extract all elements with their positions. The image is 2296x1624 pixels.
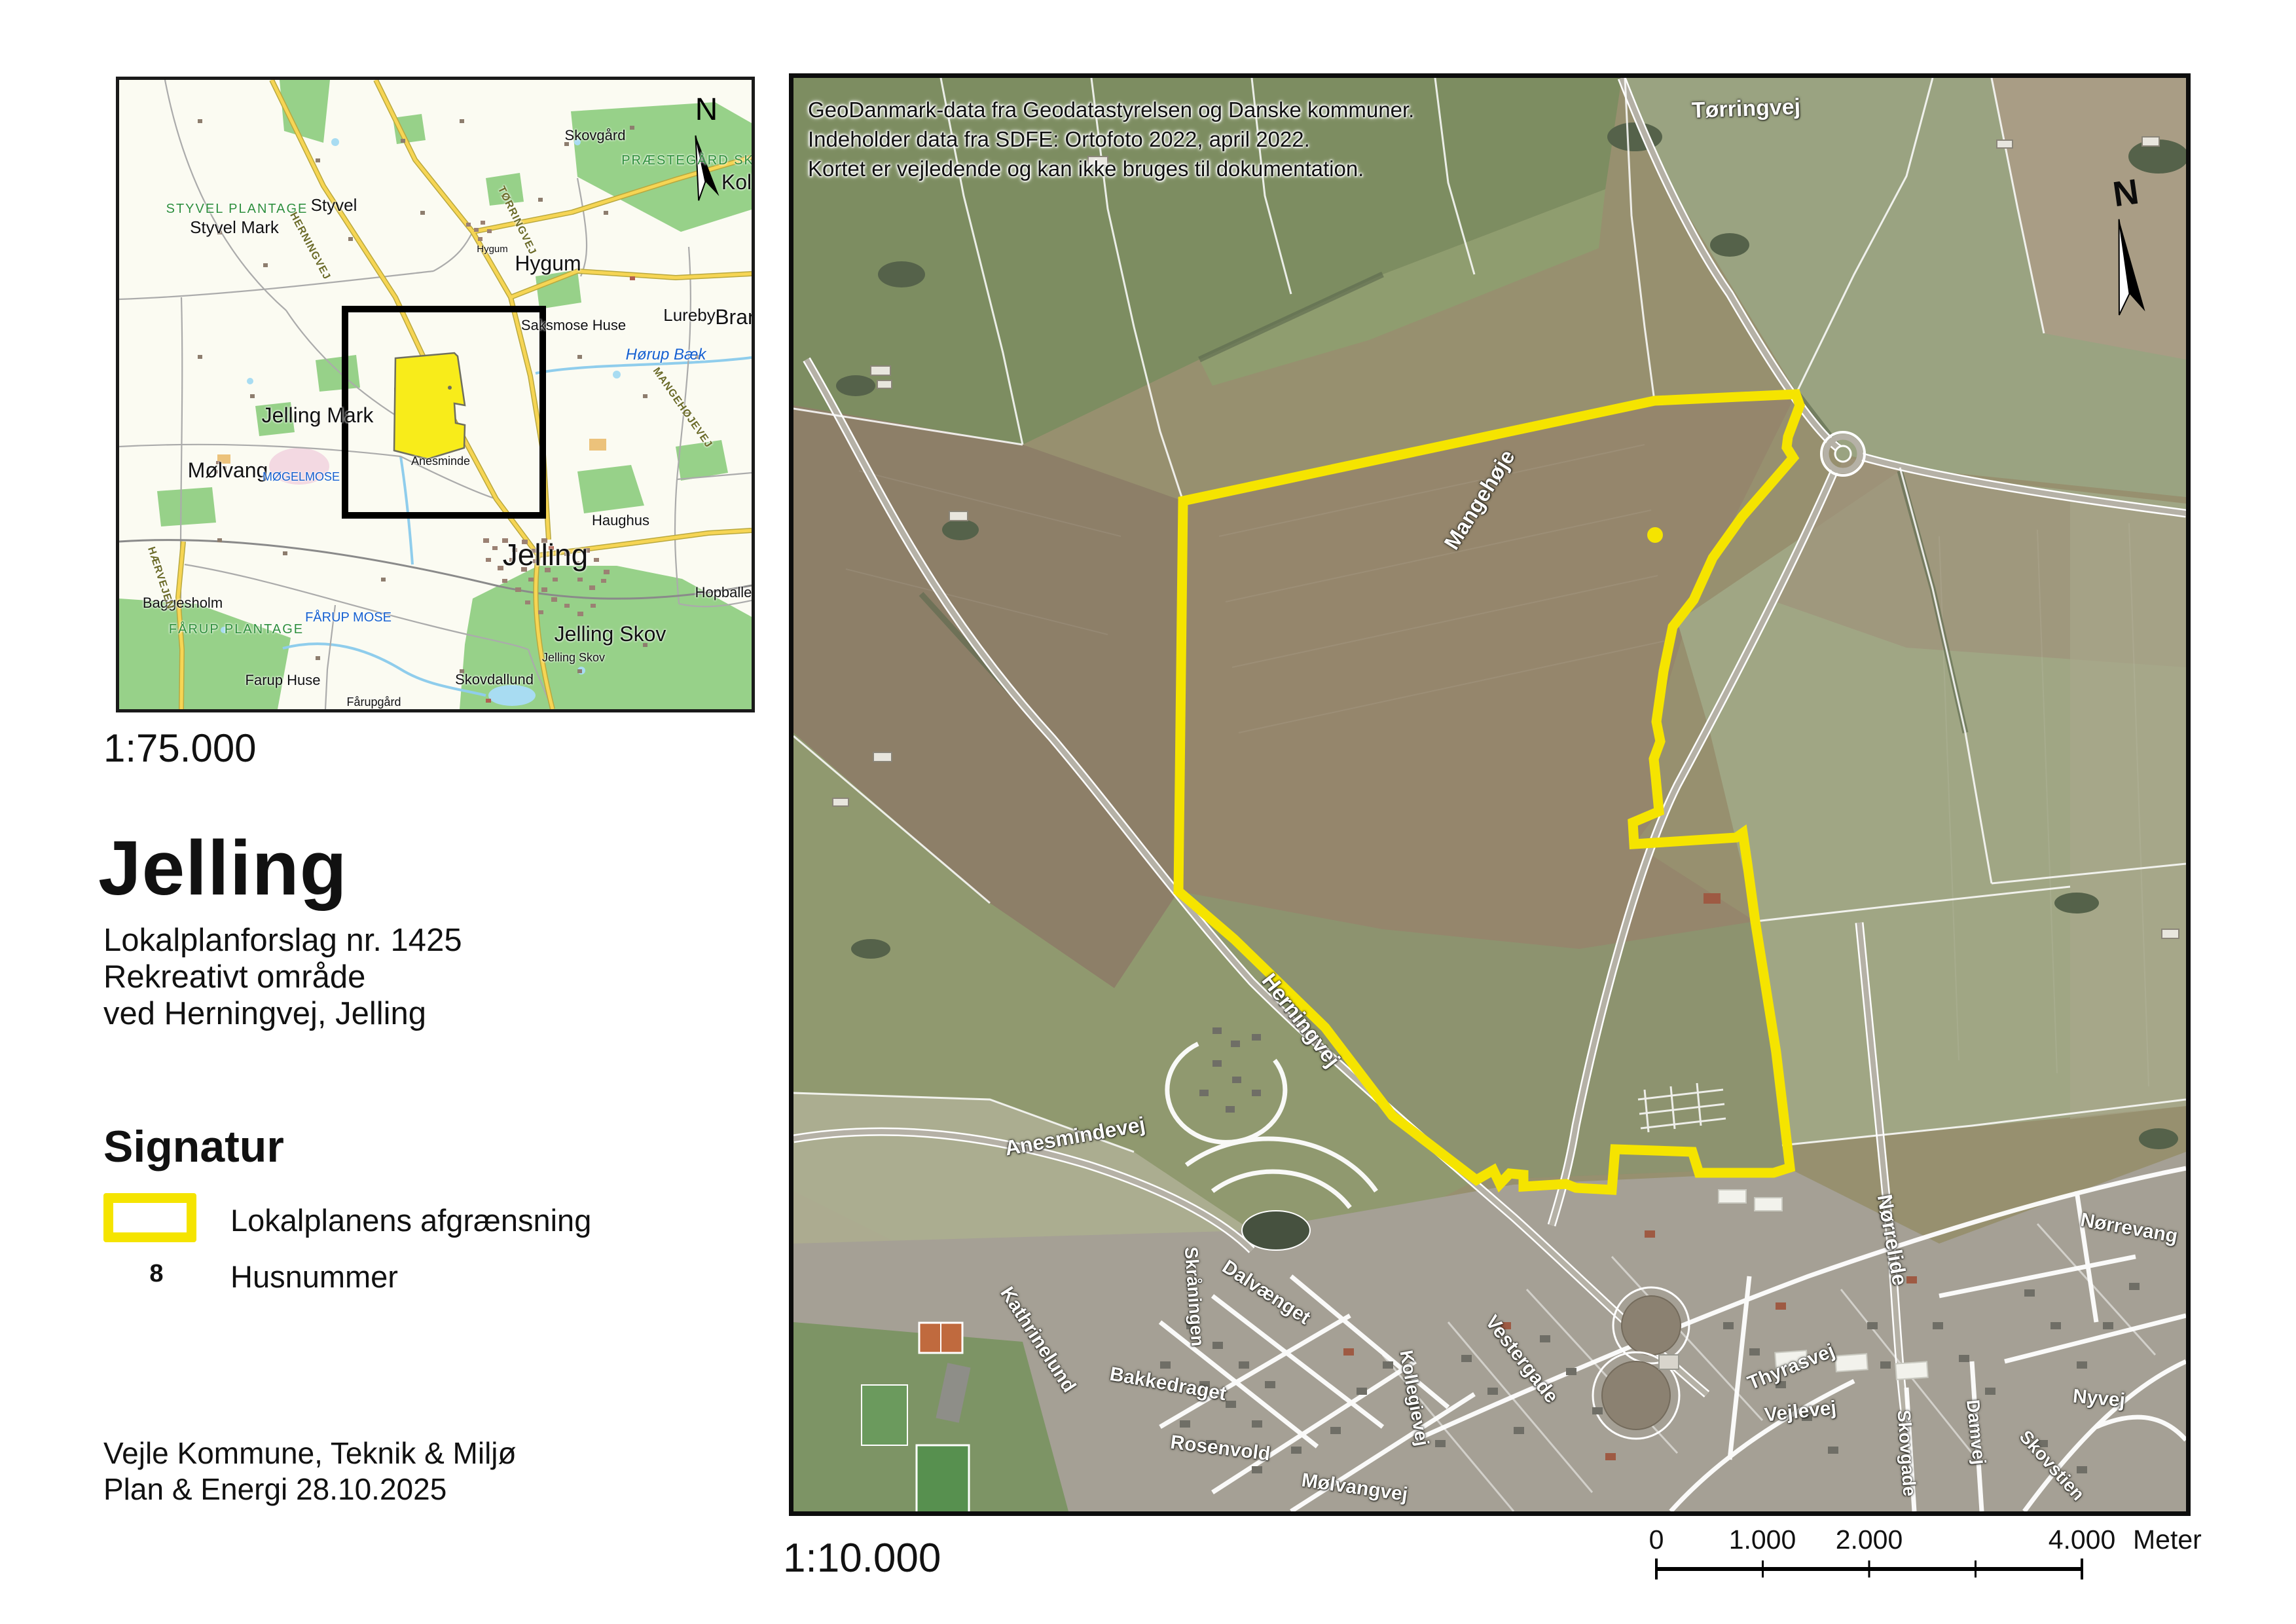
- minimap-label-kol: Kol: [707, 170, 755, 194]
- footer-line-2: Plan & Energi 28.10.2025: [103, 1471, 517, 1507]
- minimap-label-jelling-skov: Jelling Skov: [545, 622, 676, 646]
- minimap-north-label: N: [677, 92, 736, 128]
- minimap-label-skovdallund: Skovdallund: [448, 671, 540, 688]
- minimap-label-faarupgaard: Fårupgård: [335, 695, 413, 709]
- minimap-label-skovgaard: Skovgård: [543, 127, 647, 144]
- scalebar-label-0: 0: [1640, 1524, 1673, 1555]
- legend-boundary-swatch: [103, 1193, 196, 1242]
- minimap-label-anesminde: Anesminde: [401, 454, 480, 468]
- scalebar-label-4000: 4.000: [2036, 1524, 2128, 1555]
- minimap-label-jelling-town: Jelling: [480, 537, 611, 572]
- minimap-label-moegelmose: MØGELMOSE: [255, 470, 347, 484]
- minimap-label-saksmose: Saksmose Huse: [508, 317, 639, 334]
- husnummer-dot: [1647, 527, 1663, 543]
- plan-subtitle: Lokalplanforslag nr. 1425 Rekreativt omr…: [103, 922, 462, 1032]
- minimap-label-praestegaard-skov: PRÆSTEGÅRD SKOV: [600, 153, 755, 168]
- scalebar-unit: Meter: [2133, 1524, 2225, 1555]
- legend-boundary-label: Lokalplanens afgrænsning: [230, 1202, 591, 1238]
- subtitle-line-2: Rekreativt område: [103, 959, 462, 995]
- minimap-label-faarup-plantage: FÅRUP PLANTAGE: [164, 622, 308, 637]
- legend-husnummer-symbol: 8: [140, 1260, 173, 1288]
- attribution-line-3: Kortet er vejledende og kan ikke bruges …: [808, 154, 1414, 183]
- scalebar-label-2000: 2.000: [1823, 1524, 1915, 1555]
- scalebar: [1640, 1557, 2098, 1586]
- minimap-label-hygum-small: Hygum: [473, 244, 512, 255]
- overview-scale-text: 1:75.000: [103, 726, 257, 771]
- scalebar-label-1000: 1.000: [1717, 1524, 1808, 1555]
- ortho-map: GeoDanmark-data fra Geodatastyrelsen og …: [789, 73, 2191, 1516]
- pond: [1242, 1211, 1310, 1250]
- ortho-label-toerringvej: Tørringvej: [1670, 94, 1821, 124]
- legend-heading: Signatur: [103, 1121, 284, 1172]
- page-title: Jelling: [98, 824, 348, 913]
- footer-line-1: Vejle Kommune, Teknik & Miljø: [103, 1435, 517, 1471]
- minimap-label-hoerup-baek: Hørup Bæk: [613, 346, 718, 364]
- attribution-line-2: Indeholder data fra SDFE: Ortofoto 2022,…: [808, 124, 1414, 154]
- minimap-label-faarup-mose: FÅRUP MOSE: [296, 610, 401, 625]
- subtitle-line-1: Lokalplanforslag nr. 1425: [103, 922, 462, 959]
- minimap-label-haughus: Haughus: [581, 512, 660, 529]
- overview-map: Skovgård PRÆSTEGÅRD SKOV Kol Styvel Styv…: [116, 77, 755, 712]
- subtitle-line-3: ved Herningvej, Jelling: [103, 995, 462, 1032]
- ortho-scale-text: 1:10.000: [783, 1535, 941, 1581]
- footer-credit: Vejle Kommune, Teknik & Miljø Plan & Ene…: [103, 1435, 517, 1507]
- attribution-line-1: GeoDanmark-data fra Geodatastyrelsen og …: [808, 95, 1414, 124]
- minimap-label-jelling-skov-small: Jelling Skov: [534, 651, 613, 665]
- minimap-label-hygum: Hygum: [496, 251, 600, 276]
- minimap-label-styvel-mark: Styvel Mark: [169, 217, 300, 238]
- plan-map-page: Skovgård PRÆSTEGÅRD SKOV Kol Styvel Styv…: [0, 0, 2296, 1624]
- attribution: GeoDanmark-data fra Geodatastyrelsen og …: [808, 95, 1414, 183]
- minimap-label-farup-huse: Farup Huse: [237, 672, 329, 689]
- minimap-label-jelling-mark: Jelling Mark: [246, 403, 390, 428]
- legend-husnummer-label: Husnummer: [230, 1259, 398, 1295]
- minimap-industrial-patch: [589, 439, 606, 451]
- minimap-label-hopballe: Hopballe: [678, 584, 755, 601]
- minimap-label-baggesholm: Baggesholm: [137, 595, 228, 612]
- minimap-label-bran: Bran: [708, 305, 755, 329]
